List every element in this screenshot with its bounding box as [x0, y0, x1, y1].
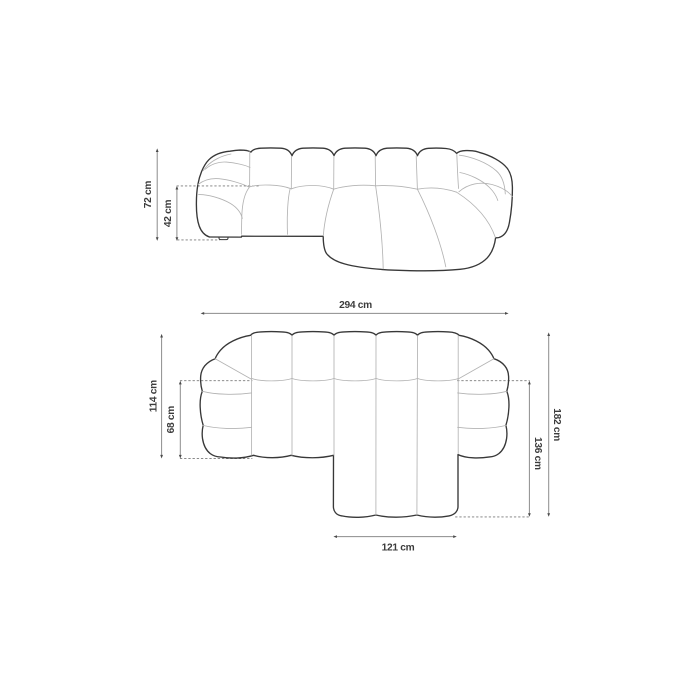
svg-text:42 cm: 42 cm — [163, 199, 174, 227]
svg-text:182 cm: 182 cm — [551, 408, 562, 441]
svg-text:114 cm: 114 cm — [148, 380, 159, 412]
svg-text:294 cm: 294 cm — [339, 300, 372, 311]
svg-text:136 cm: 136 cm — [532, 437, 543, 470]
svg-text:72 cm: 72 cm — [143, 181, 154, 209]
svg-text:68 cm: 68 cm — [166, 406, 177, 434]
svg-text:121 cm: 121 cm — [382, 543, 415, 554]
